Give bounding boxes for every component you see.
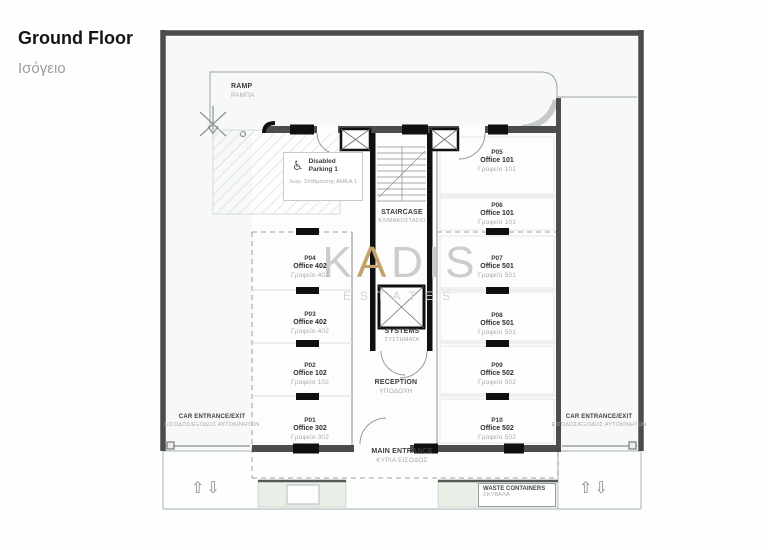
floor-plan-page: Ground Floor Ισόγειο xyxy=(0,0,768,550)
arrow-up-icon: ⇧ xyxy=(191,478,206,497)
bottom-outline xyxy=(163,451,641,509)
wheelchair-icon: ♿ xyxy=(292,158,304,174)
direction-arrows-right: ⇧⇩ xyxy=(579,478,610,497)
direction-arrows-left: ⇧⇩ xyxy=(191,478,222,497)
disabled-parking-label-el: Χώρ. Στάθμευσης ΑΜΕΑ 1 xyxy=(284,179,362,185)
arrow-down-icon: ⇩ xyxy=(206,478,221,497)
disabled-parking-label-en: Disabled Parking 1 xyxy=(309,158,349,175)
building-right-wall xyxy=(556,98,561,452)
site-fill xyxy=(165,33,639,451)
waste-containers-box: WASTE CONTAINERS ΣΚΥΒΑΛΑ xyxy=(478,483,556,507)
disabled-parking-box: ♿ Disabled Parking 1 Χώρ. Στάθμευσης ΑΜΕ… xyxy=(283,152,363,201)
systems-room xyxy=(377,330,426,348)
waste-label-el: ΣΚΥΒΑΛΑ xyxy=(479,492,555,498)
floor-plan-drawing xyxy=(0,0,768,550)
title-el: Ισόγειο xyxy=(18,60,133,77)
disabled-parking-row: ♿ Disabled Parking 1 xyxy=(284,158,362,175)
title-en: Ground Floor xyxy=(18,28,133,49)
page-title: Ground Floor Ισόγειο xyxy=(18,28,133,77)
arrow-down-icon: ⇩ xyxy=(594,478,609,497)
arrow-up-icon: ⇧ xyxy=(579,478,594,497)
waste-label-en: WASTE CONTAINERS xyxy=(479,484,555,492)
